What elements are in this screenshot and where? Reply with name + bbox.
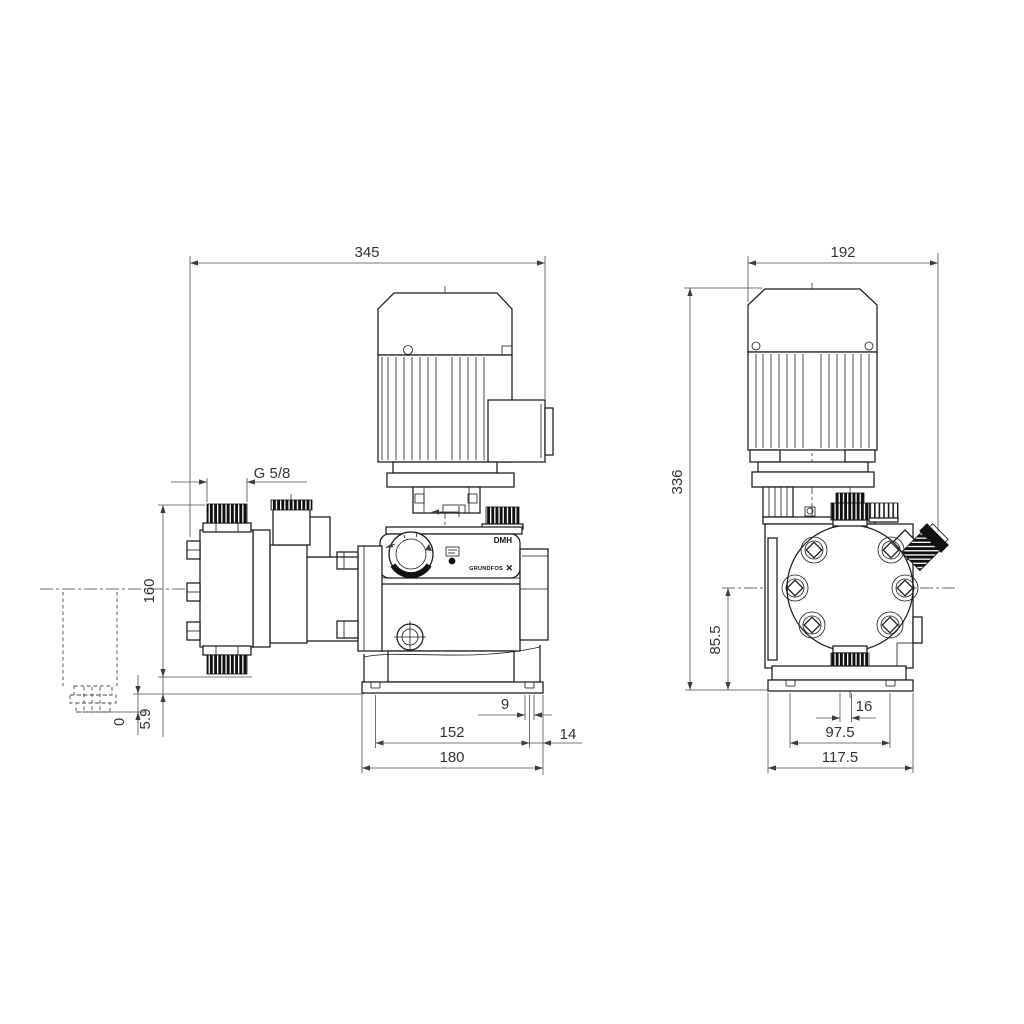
- dim-side-base-width: 117.5: [822, 749, 858, 766]
- dim-total-height: 336: [669, 469, 686, 494]
- dim-slot-center-offset: 16: [856, 698, 873, 715]
- dim-slot-spacing: 152: [439, 724, 464, 741]
- tie-rod-nut-top: [337, 552, 358, 569]
- dim-center-height: 85.5: [707, 625, 724, 654]
- motor-foot-right: [845, 450, 875, 462]
- rear-cover-block: [520, 549, 548, 640]
- vent-valve-cap: [271, 500, 312, 510]
- bottom-port-thread: [207, 655, 247, 674]
- top-port-collar: [203, 523, 251, 532]
- motor-flange-upper: [393, 462, 497, 473]
- dim-slot-edge-offset: 14: [560, 726, 577, 743]
- dim-thread: G 5/8: [254, 465, 291, 482]
- brand-logo-mark: ✕: [505, 563, 513, 573]
- head-backplate: [253, 530, 270, 647]
- side-flange-lower: [752, 472, 874, 487]
- pump-dimension-drawing: DMH GRUNDFOS ✕: [0, 0, 1024, 1024]
- head-spacer: [270, 545, 307, 643]
- motor-foot-left: [750, 450, 780, 462]
- terminal-box: [488, 400, 545, 462]
- side-base: [768, 666, 913, 691]
- dim-side-width: 192: [830, 244, 855, 261]
- dim-datum: 0: [111, 718, 128, 726]
- front-gearbox: DMH GRUNDFOS ✕: [305, 517, 548, 653]
- terminal-box-cap: [545, 408, 553, 455]
- side-view: 192 336 85.5 16: [669, 244, 958, 773]
- head-mounting-flange: [358, 546, 382, 651]
- top-connector-collar: [833, 520, 867, 526]
- phantom-connection: [63, 592, 117, 712]
- side-motor: [748, 289, 877, 524]
- dim-slot-width: 9: [501, 696, 509, 713]
- side-adjust-knob: [869, 503, 898, 518]
- dim-side-slot-spacing: 97.5: [825, 724, 854, 741]
- head-block: [200, 530, 253, 647]
- tie-rod-nut-bottom: [337, 621, 358, 638]
- dim-port-span: 160: [141, 578, 158, 603]
- side-left-plate: [768, 538, 777, 660]
- brand-logo: GRUNDFOS: [469, 566, 503, 572]
- fan-cover: [378, 293, 512, 355]
- side-fan-cover: [748, 289, 877, 352]
- technical-drawing-page: DMH GRUNDFOS ✕: [0, 0, 1024, 1024]
- top-connector-cap: [836, 493, 864, 503]
- front-base: [362, 645, 543, 693]
- bottom-connector-collar: [833, 646, 867, 653]
- bottom-port-collar: [203, 646, 251, 655]
- top-port-thread: [207, 504, 247, 523]
- side-flange-upper: [758, 462, 868, 472]
- dim-total-width: 345: [354, 244, 379, 261]
- motor-flange-lower: [387, 473, 514, 487]
- side-base-plate: [768, 680, 913, 691]
- stroke-adjust-knob: [486, 507, 519, 526]
- dim-base-width: 180: [439, 749, 464, 766]
- plug-dot: [449, 558, 455, 564]
- side-motor-body: [748, 352, 877, 450]
- front-dosing-head: [187, 500, 312, 674]
- lantern: [413, 487, 480, 513]
- base-plate: [362, 682, 543, 693]
- top-connector-thread: [831, 503, 869, 520]
- front-motor: [378, 293, 553, 529]
- oil-sump: [388, 651, 514, 682]
- side-foot-bracket: [772, 666, 906, 680]
- front-view: DMH GRUNDFOS ✕: [40, 244, 582, 775]
- vent-valve-body: [273, 508, 310, 545]
- side-tab: [913, 617, 922, 643]
- model-label: DMH: [494, 536, 512, 545]
- head-bolts: [187, 541, 200, 640]
- side-lantern-rib: [763, 487, 793, 517]
